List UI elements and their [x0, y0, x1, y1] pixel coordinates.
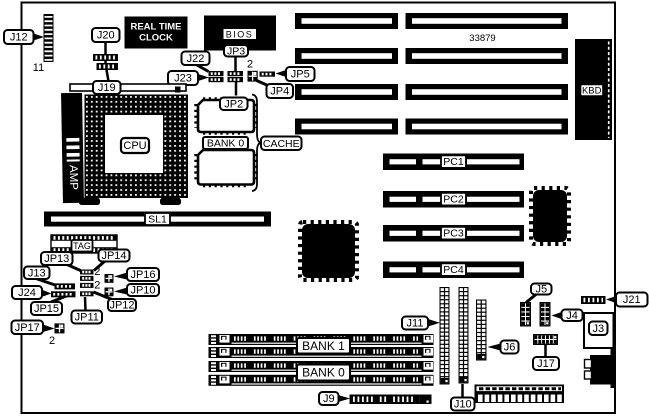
svg-text:J12: J12 [10, 32, 28, 44]
svg-text:SL1: SL1 [148, 214, 167, 226]
svg-text:AMP: AMP [67, 165, 79, 190]
svg-text:BANK 1: BANK 1 [302, 339, 345, 353]
svg-text:J21: J21 [623, 294, 641, 306]
svg-text:2: 2 [94, 280, 100, 292]
svg-text:J4: J4 [566, 310, 578, 322]
svg-text:JP2: JP2 [224, 99, 243, 111]
svg-text:J22: J22 [187, 53, 205, 65]
svg-text:REAL TIME: REAL TIME [130, 22, 181, 33]
svg-text:PC4: PC4 [443, 264, 464, 276]
svg-text:PC3: PC3 [443, 228, 464, 240]
svg-text:J11: J11 [407, 318, 424, 330]
svg-text:J9: J9 [323, 393, 335, 405]
svg-text:11: 11 [33, 62, 44, 74]
svg-text:J5: J5 [535, 284, 547, 296]
svg-text:JP17: JP17 [15, 322, 40, 334]
svg-text:JP12: JP12 [109, 300, 134, 312]
svg-text:2: 2 [49, 335, 55, 347]
svg-text:BIOS: BIOS [226, 29, 254, 39]
svg-text:JP10: JP10 [130, 285, 155, 297]
svg-text:J19: J19 [98, 82, 116, 94]
svg-text:JP11: JP11 [75, 312, 99, 324]
svg-text:J20: J20 [97, 30, 115, 42]
svg-text:J13: J13 [28, 268, 46, 280]
svg-text:JP3: JP3 [227, 45, 245, 57]
svg-text:CPU: CPU [123, 140, 146, 152]
svg-text:J23: J23 [174, 73, 192, 85]
svg-text:33879: 33879 [469, 33, 495, 44]
svg-text:J3: J3 [592, 323, 604, 335]
svg-text:J10: J10 [454, 399, 472, 411]
svg-text:PC1: PC1 [443, 156, 464, 168]
svg-text:2: 2 [247, 59, 253, 71]
svg-text:2: 2 [94, 266, 100, 278]
svg-text:J24: J24 [18, 287, 36, 299]
svg-text:JP16: JP16 [130, 269, 155, 281]
svg-text:JP5: JP5 [291, 69, 310, 81]
svg-text:J6: J6 [504, 342, 516, 354]
svg-text:JP4: JP4 [270, 86, 289, 98]
svg-text:PC2: PC2 [443, 194, 464, 206]
svg-text:JP15: JP15 [34, 303, 59, 315]
svg-text:TAG: TAG [73, 241, 91, 251]
svg-text:J17: J17 [537, 358, 555, 370]
svg-text:CLOCK: CLOCK [139, 33, 173, 44]
svg-text:BANK 0: BANK 0 [207, 138, 245, 150]
svg-text:JP13: JP13 [44, 253, 69, 265]
svg-text:KBD: KBD [582, 86, 602, 97]
svg-text:BANK 0: BANK 0 [302, 366, 345, 380]
svg-text:CACHE: CACHE [263, 138, 300, 150]
svg-text:JP14: JP14 [101, 250, 126, 262]
